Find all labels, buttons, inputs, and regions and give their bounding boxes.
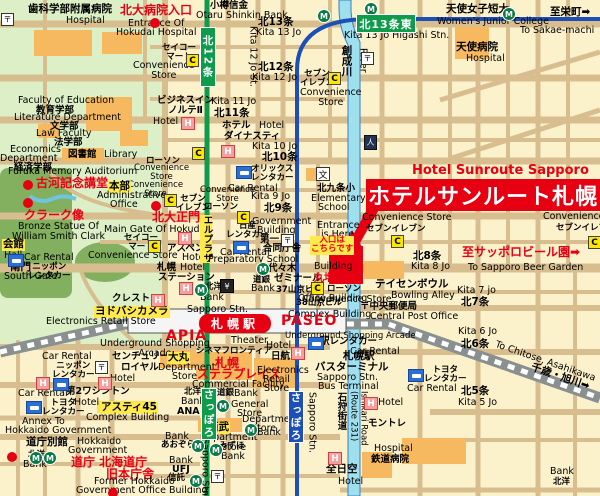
subway-entrance-icon: M [256, 262, 270, 276]
hotel-name-en: Hotel Sunroute Sapporo [412, 164, 589, 178]
map-label: Hotel [153, 117, 178, 127]
map-label: 全日空 [326, 464, 358, 476]
post-office-icon: 〒 [95, 361, 108, 374]
map-label: Bank [550, 467, 574, 477]
map-label: 日航 [271, 352, 290, 362]
car-rental-icon [53, 378, 69, 391]
subway-entrance-icon: M [209, 443, 223, 457]
map-label: 天使病院 [456, 42, 498, 54]
convenience-store-icon: C [311, 282, 324, 295]
map-label: 至栄町➡ [550, 7, 590, 19]
map-label: Kita 8 Jo [411, 262, 450, 272]
convenience-store-icon: C [192, 147, 205, 160]
subway-entrance-icon: M [502, 7, 516, 21]
map-label: 北6条 [461, 339, 489, 351]
map-label: 道銀 [217, 389, 234, 398]
map-label: Electronics Retail Store [46, 317, 156, 327]
map-label: Hokudai Hospital [116, 28, 196, 38]
hotel-icon: H [328, 452, 342, 465]
map-label: 古河記念講堂 [36, 177, 108, 190]
post-office-icon: 〒 [281, 234, 294, 247]
map-label: Convenience Store [362, 213, 452, 223]
map-label: Kita 13 Jo [256, 28, 301, 38]
poi-marker-dot [150, 18, 160, 28]
map-label: Convenience Store [88, 251, 178, 261]
map-label: Hotel [338, 477, 363, 487]
map-label: ビジネスイン ノルテⅡ [157, 96, 214, 117]
map-label: Hospital [374, 444, 413, 454]
subway-entrance-icon: M [216, 399, 230, 413]
car-rental-icon [26, 401, 42, 414]
subway-sign-sapporo-namboku: さっぽろ [201, 388, 217, 440]
car-rental-icon [408, 369, 424, 382]
map-label: Hotel [266, 341, 291, 351]
map-label: 天使女子短大 [446, 4, 509, 16]
map-label: ローソン [327, 285, 361, 294]
police-box-icon: 人 [364, 135, 377, 150]
map-label: オリックス レンタカー [251, 165, 294, 184]
hotel-icon: H [36, 377, 50, 390]
convenience-store-icon: C [391, 235, 404, 248]
convenience-store-icon: C [186, 54, 199, 67]
map-label: あおぞら [161, 441, 195, 450]
map-label: Hotel [259, 121, 284, 131]
map-label: To Sapporo Beer Garden [468, 263, 583, 273]
map-label: Kita 5 Jo [458, 398, 497, 408]
car-rental-icon [233, 241, 249, 254]
hotel-icon: H [98, 377, 112, 390]
subway-entrance-icon: M [317, 9, 331, 23]
map-label: 北7条 [461, 297, 489, 309]
map-label: Kita 9 Jo [251, 192, 290, 202]
convenience-store-icon: C [148, 240, 161, 253]
map-label: Car Rental [407, 384, 457, 394]
map-label: ローソン [204, 203, 238, 212]
hotel-icon: H [181, 117, 195, 130]
map-label: Library [104, 150, 137, 160]
map-label: Theater [231, 336, 268, 346]
hotel-icon: H [179, 282, 193, 295]
hotel-sunroute-banner: ホテルサンルート札幌 [366, 179, 600, 211]
subway-sign-kita12jo: 北12条 [200, 27, 216, 87]
map-label: シネマフロンティア [196, 347, 272, 356]
map-label: 道庁別館 [26, 437, 68, 449]
bank-icon: ¥ [220, 279, 234, 293]
subway-entrance-icon: M [189, 474, 203, 488]
poi-marker-dot [151, 201, 161, 211]
map-label: 北洋 [553, 478, 570, 487]
poi-marker-dot [23, 180, 33, 190]
poi-marker-dot [108, 488, 118, 496]
map-label: ホテル [222, 121, 251, 131]
map-label: To Sakae-machi [520, 26, 594, 36]
map-label: 北大病院入口 [120, 4, 192, 17]
map-label: 北5条 [461, 386, 489, 398]
map-label: Store [264, 384, 289, 394]
map-label: 至サッポロビール園➡ [462, 246, 580, 259]
map-label: トヨタ レンタカー [424, 366, 467, 385]
map-label: Government Office Building [76, 486, 208, 496]
subway-entrance-icon: M [191, 439, 205, 453]
post-office-icon: 〒 [211, 470, 224, 483]
map-label: テイセンボウル [375, 279, 449, 291]
map-label: 北大正門 [152, 211, 200, 224]
map-label: Hotel [378, 398, 403, 408]
jr-sapporo-station-sign: 札幌駅 [199, 314, 271, 333]
map-label: Sapporo Stn. [306, 392, 316, 453]
sapporo-access-map: 歯科学部附属病院Hospital北大病院入口Entrance OfHokudai… [0, 0, 600, 496]
map-label: Building [314, 262, 353, 272]
car-rental-icon [236, 166, 252, 179]
subway-entrance-icon: M [43, 451, 57, 465]
post-office-icon: 〒 [361, 52, 374, 65]
car-rental-icon [308, 337, 324, 350]
map-label: Kita 6 Jo [458, 327, 497, 337]
subway-sign-kita13jo-higashi: 北13条東 [356, 14, 416, 33]
map-label: 入口は こちらです [310, 236, 354, 255]
paseo-label: PASEO [281, 314, 337, 329]
map-label: ロイヤル [121, 363, 159, 373]
map-label: セブンイレブン [556, 224, 600, 233]
poi-marker-dot [7, 452, 17, 462]
map-label: 歯科学部附属病院 [28, 4, 112, 16]
map-label: 北10条 [262, 152, 298, 164]
map-label: 信託 [168, 474, 185, 483]
map-label: Kita 12 Jo [252, 73, 297, 83]
map-label: Bank [221, 452, 245, 462]
map-label: Office [110, 200, 138, 210]
map-label: Hospital [66, 16, 105, 26]
convenience-store-icon: C [328, 72, 341, 85]
map-label: ANA [177, 407, 200, 417]
subway-entrance-icon: M [194, 283, 208, 297]
map-label: センチュリー [112, 352, 169, 362]
map-label: Hospital [466, 54, 505, 64]
map-label: モントレ [368, 419, 406, 429]
map-label: School [318, 203, 350, 213]
map-label: Convenience Store [300, 88, 362, 109]
hotel-icon: H [364, 397, 378, 410]
map-label: トヨタ レンタカー [42, 399, 85, 418]
map-label: Bank [251, 284, 275, 294]
map-label: Hotel [110, 374, 135, 384]
map-label: Bank [257, 428, 281, 438]
map-label: Kita 7 jo [457, 286, 496, 296]
map-label: セブンイレブン [366, 225, 426, 234]
map-label: 創成川 [340, 45, 352, 77]
school-icon: 文 [316, 167, 330, 181]
map-label: Hokkaido Government [5, 426, 111, 436]
map-label: Bank [234, 389, 258, 399]
map-label: 石狩街道 [335, 392, 345, 430]
map-label: Central Post Office [370, 312, 458, 322]
map-label: 鉄道病院 [371, 455, 409, 465]
convenience-store-icon: C [237, 211, 250, 224]
subway-entrance-icon: M [29, 451, 43, 465]
subway-sign-sapporo-toho: さっぽろ [288, 391, 304, 443]
map-label: William Smith Clark [12, 232, 105, 242]
map-label: Bowling Alley [391, 291, 455, 301]
map-label: Complex Building [86, 413, 169, 423]
subway-entrance-icon: M [244, 423, 258, 437]
hotel-icon: H [221, 145, 235, 158]
convenience-store-icon: C [588, 236, 600, 249]
hotel-icon: H [178, 232, 192, 245]
poi-marker-dot [23, 198, 33, 208]
map-label: (Route 231) [348, 391, 357, 441]
map-label: Convenience Store [543, 212, 600, 222]
map-label: 図書館 [68, 150, 97, 160]
map-label: クレスト [112, 294, 150, 304]
map-label: 北11条 [214, 108, 250, 120]
car-rental-icon [8, 254, 24, 267]
convenience-store-icon: C [164, 194, 177, 207]
hotel-icon: H [291, 347, 305, 360]
post-office-icon: 〒 [1, 13, 14, 26]
map-label: 北9条 [264, 203, 292, 215]
map-label: 会館 [2, 239, 25, 251]
map-label: ニッポン レンタカー [28, 263, 71, 282]
map-label: Kita 11 Jo [211, 97, 256, 107]
hotel-icon: H [151, 294, 165, 307]
